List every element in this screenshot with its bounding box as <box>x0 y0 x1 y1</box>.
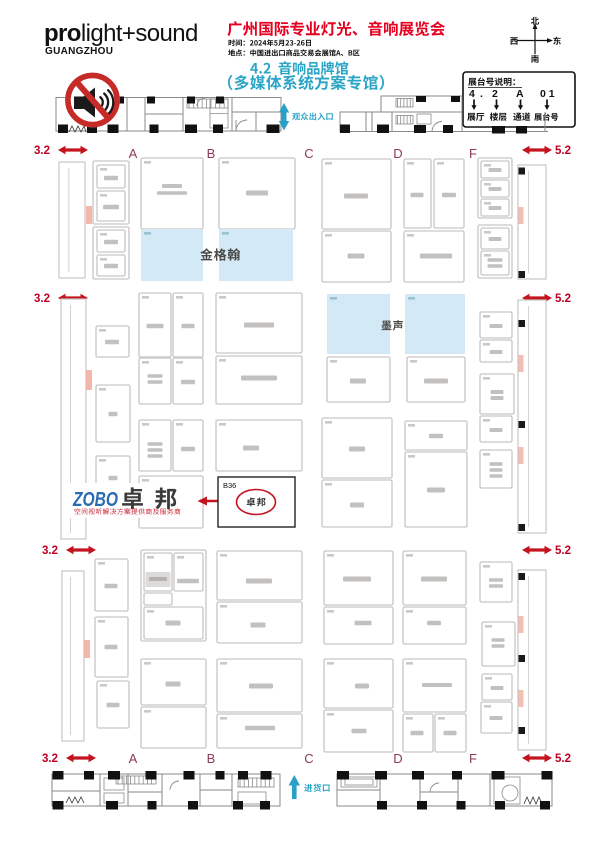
svg-text:B: B <box>207 751 216 766</box>
svg-text:5.2: 5.2 <box>555 753 571 765</box>
svg-text:0 1: 0 1 <box>540 88 555 100</box>
svg-text:C: C <box>304 751 313 766</box>
svg-text:2: 2 <box>492 88 498 100</box>
svg-text:A: A <box>129 751 138 766</box>
svg-text:D: D <box>393 146 402 161</box>
svg-text:F: F <box>469 146 477 161</box>
svg-text:5.2: 5.2 <box>555 293 571 305</box>
svg-text:C: C <box>304 146 313 161</box>
svg-text:3.2: 3.2 <box>42 753 58 765</box>
svg-text:B: B <box>207 146 216 161</box>
svg-text:F: F <box>469 751 477 766</box>
svg-text:prolight+sound: prolight+sound <box>44 20 198 47</box>
svg-text:5.2: 5.2 <box>555 545 571 557</box>
svg-text:5.2: 5.2 <box>555 145 571 157</box>
svg-text:ZOBO: ZOBO <box>72 488 118 511</box>
svg-text:4: 4 <box>469 88 475 100</box>
svg-text:3.2: 3.2 <box>42 545 58 557</box>
svg-text:A: A <box>516 88 524 100</box>
svg-text:.: . <box>480 88 483 100</box>
svg-text:3.2: 3.2 <box>34 145 50 157</box>
svg-text:D: D <box>393 751 402 766</box>
svg-text:A: A <box>129 146 138 161</box>
svg-text:3.2: 3.2 <box>34 293 50 305</box>
svg-text:GUANGZHOU: GUANGZHOU <box>45 46 113 57</box>
svg-text:B36: B36 <box>223 481 236 490</box>
